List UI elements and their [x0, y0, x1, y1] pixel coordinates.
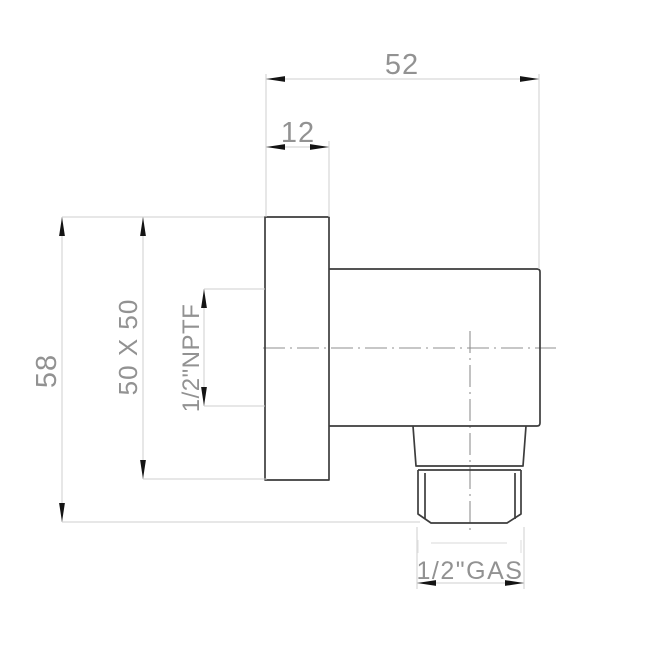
dimension-overall-height: 58 — [31, 217, 420, 522]
dimension-label-flange-thickness: 12 — [281, 117, 315, 149]
arrowhead-down-icon — [59, 503, 65, 522]
dimension-label-overall-height: 58 — [31, 354, 63, 388]
part-outline — [265, 217, 540, 553]
dimension-overall-depth: 52 — [266, 49, 539, 269]
arrowhead-up-icon — [140, 217, 146, 236]
arrowhead-right-icon — [520, 76, 539, 82]
technical-drawing-canvas: 52 12 58 50 X 50 — [0, 0, 645, 663]
centerlines — [263, 331, 556, 531]
shower-outlet-elbow-drawing: 52 12 58 50 X 50 — [0, 0, 645, 663]
arrowhead-up-icon — [59, 217, 65, 236]
dimension-inlet-thread: 1/2"NPTF — [178, 289, 265, 412]
dimension-label-overall-depth: 52 — [385, 49, 419, 81]
arrowhead-down-icon — [140, 460, 146, 479]
dimension-flange-thickness: 12 — [266, 117, 329, 217]
dimension-label-flange-size: 50 X 50 — [113, 299, 143, 396]
dimension-label-outlet-thread: 1/2"GAS — [417, 557, 524, 585]
dimension-label-inlet-thread: 1/2"NPTF — [178, 304, 205, 413]
thread-reflection — [418, 540, 521, 553]
dimension-outlet-thread: 1/2"GAS — [417, 527, 524, 589]
arrowhead-left-icon — [266, 76, 285, 82]
